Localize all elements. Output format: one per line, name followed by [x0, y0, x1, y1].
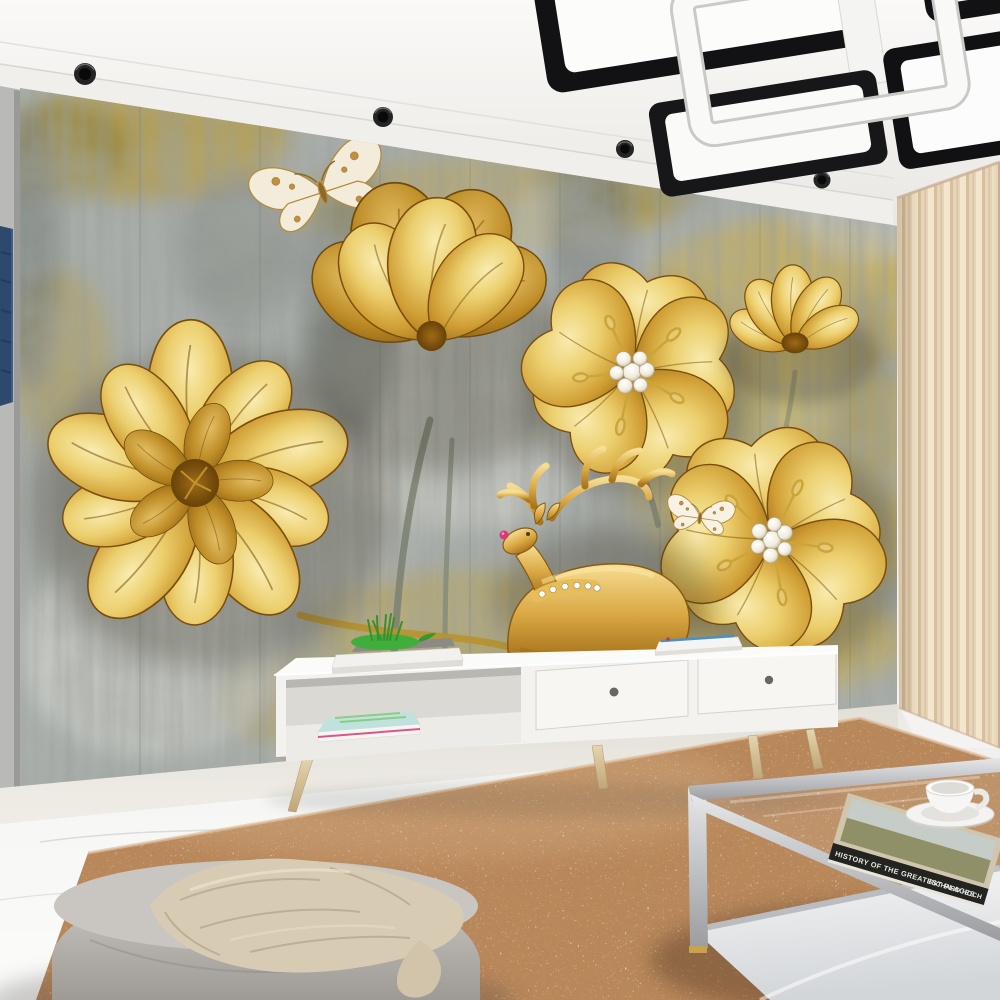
drawer-knob — [610, 688, 619, 697]
left-wall-corner — [0, 86, 22, 792]
scene-canvas: HISTORY OF THE GREATEST PLACES RICHARD H… — [0, 0, 1000, 1000]
drawer-knob — [765, 676, 773, 684]
blue-curtain — [0, 226, 13, 406]
table-foot-brass — [689, 946, 707, 953]
spotlight-icon — [74, 63, 96, 85]
spotlight-icon — [373, 107, 393, 127]
spotlight-icon — [814, 172, 831, 189]
curtain-shading — [897, 162, 1000, 748]
deer-ruby-nose — [500, 531, 509, 540]
spotlight-icon — [616, 140, 634, 158]
deer-eye — [526, 532, 530, 536]
right-curtain — [897, 162, 1000, 748]
living-room-scene: HISTORY OF THE GREATEST PLACES RICHARD H… — [0, 0, 1000, 1000]
